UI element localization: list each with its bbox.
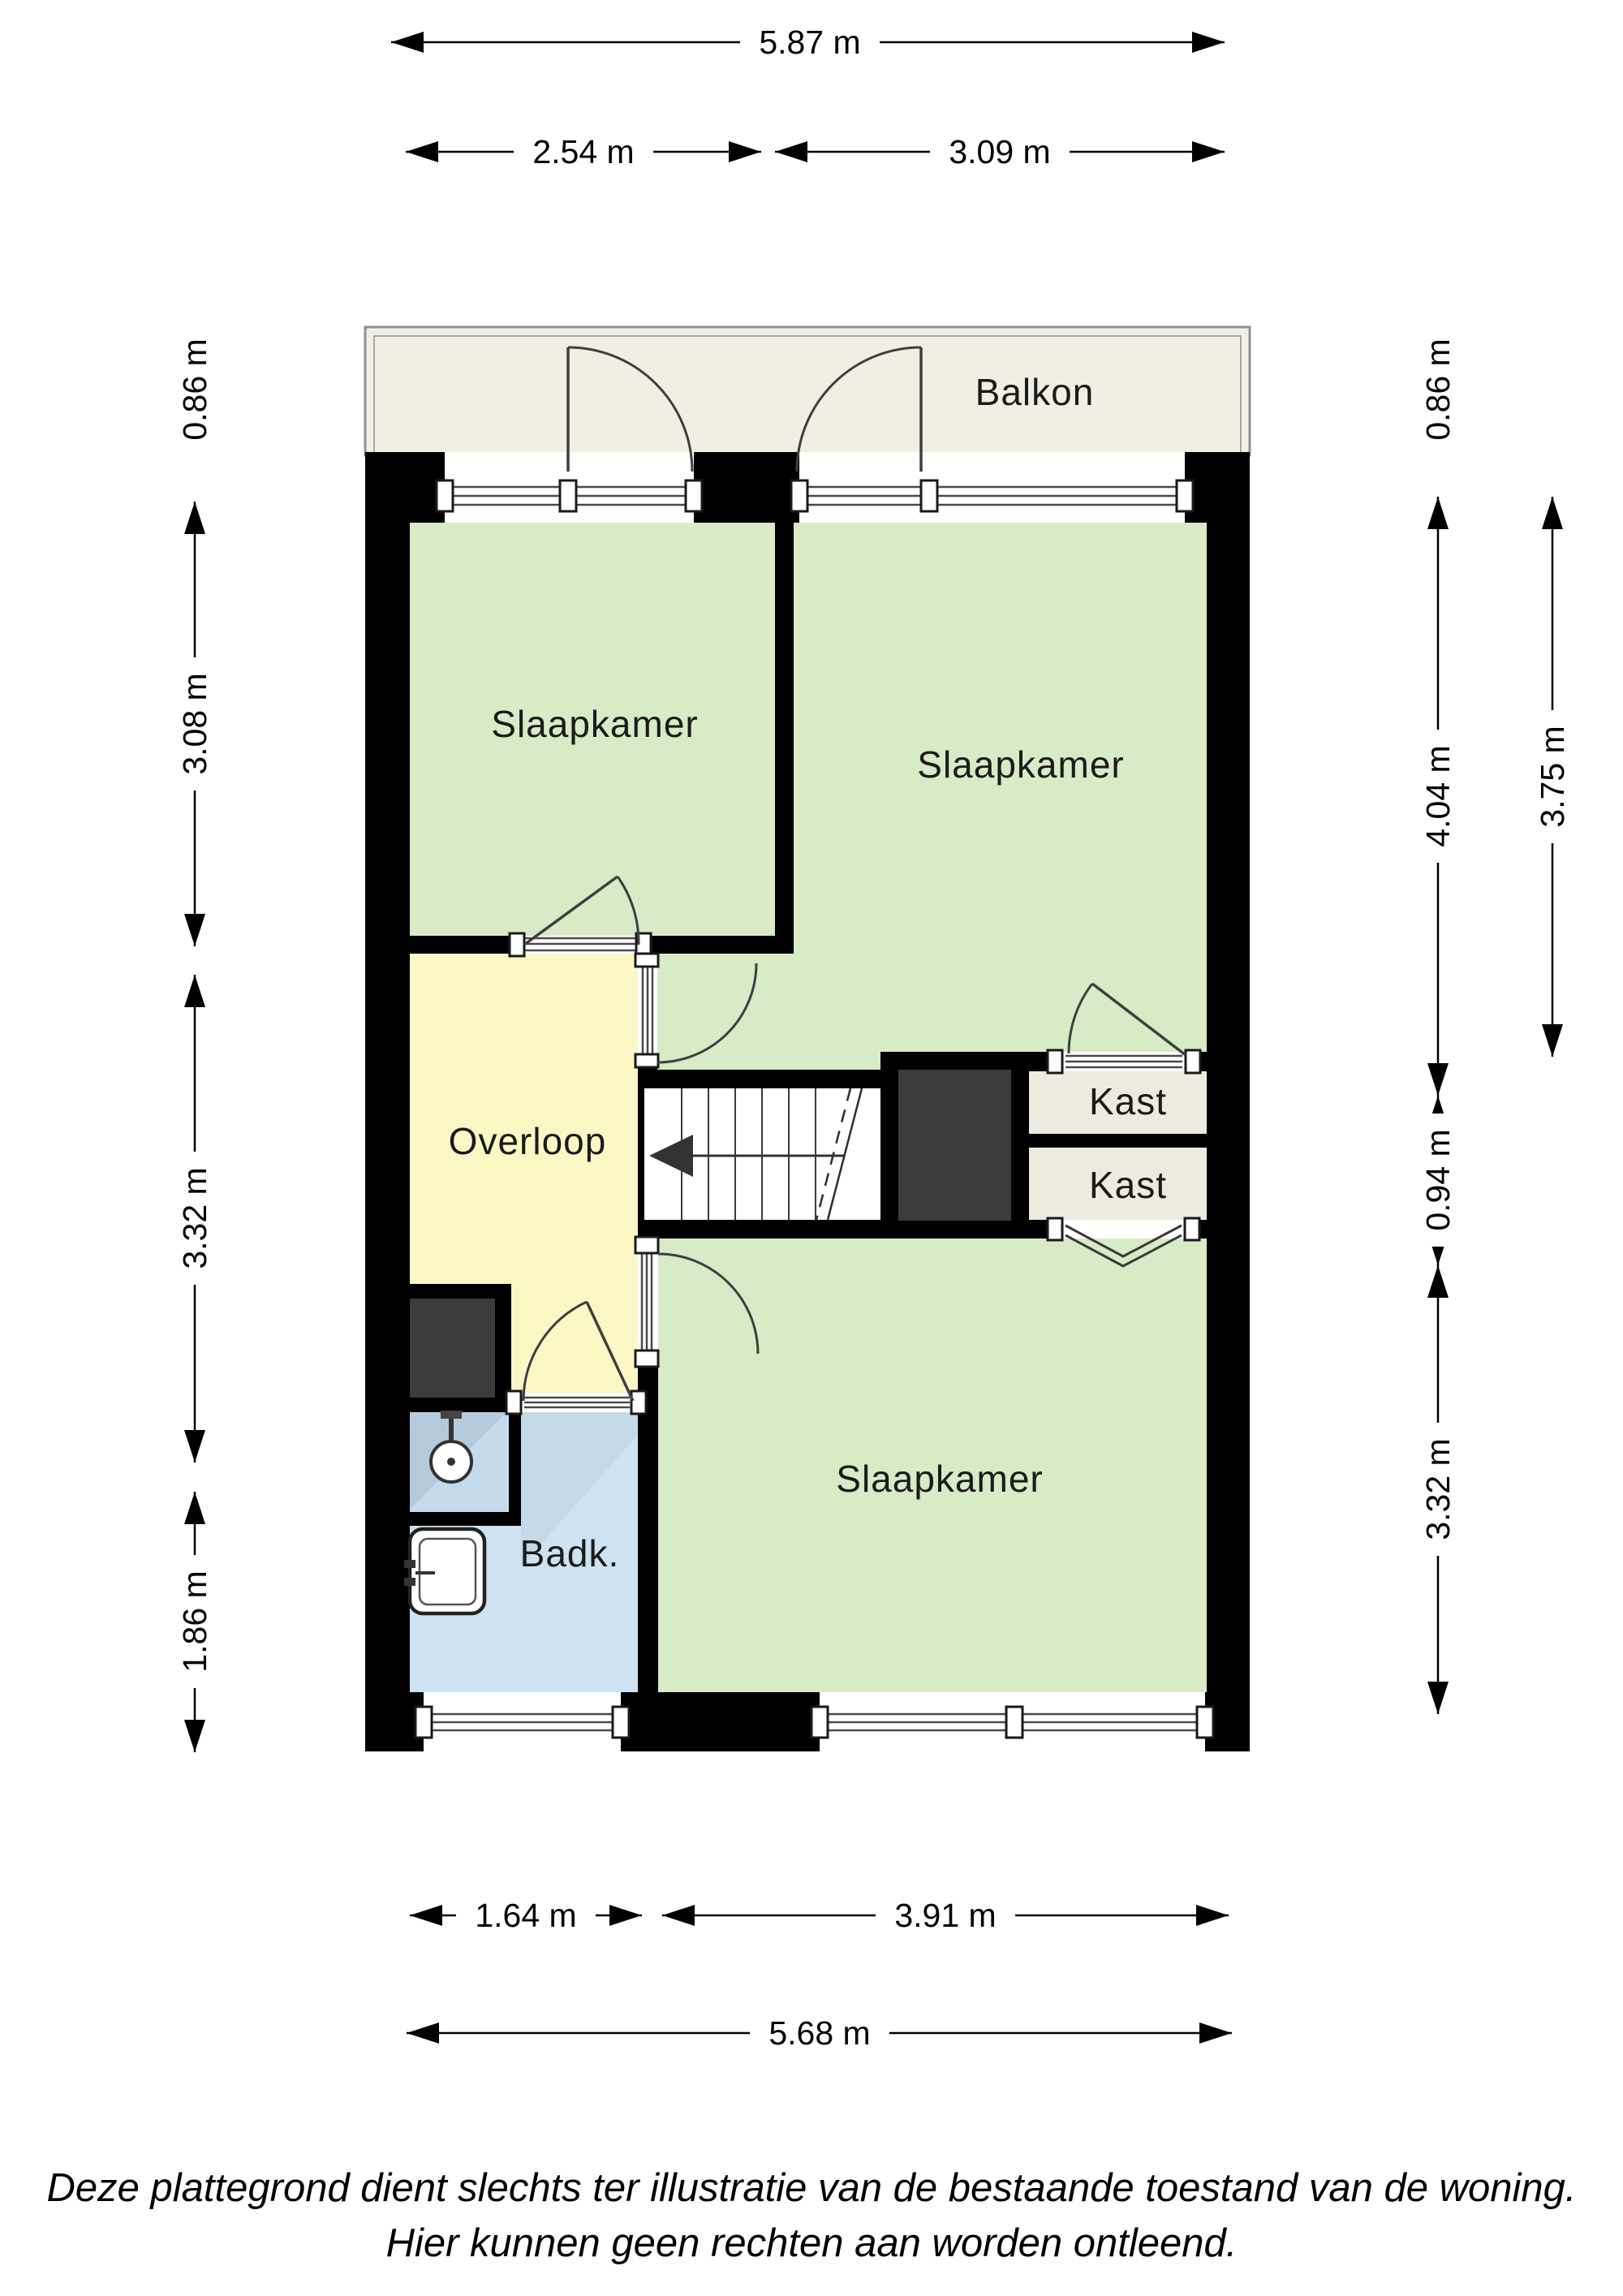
dim-left-middle: 3.32 m	[174, 975, 216, 1462]
room-label-badkamer: Badk.	[520, 1532, 620, 1574]
dim-bottom-left: 1.64 m	[410, 1897, 642, 1934]
balcony	[365, 327, 1250, 455]
dim-right-upper: 4.04 m	[1417, 497, 1459, 1096]
stairs-left-stringer	[638, 1088, 644, 1220]
dim-right-middle: 0.94 m	[1417, 1096, 1459, 1265]
dim-bottom-right: 3.91 m	[662, 1897, 1229, 1934]
dim-top-total: 5.87 m	[391, 24, 1225, 61]
balcony-floor	[365, 327, 1250, 455]
dim-bottom-total: 5.68 m	[407, 2014, 1232, 2052]
dim-top-right: 3.09 m	[775, 133, 1225, 170]
dim-label-bottom-total: 5.68 m	[768, 2014, 870, 2052]
disclaimer-line-1: Deze plattegrond dient slechts ter illus…	[47, 2166, 1577, 2210]
dim-label-right-middle: 0.94 m	[1419, 1129, 1457, 1230]
dim-top-left: 2.54 m	[406, 133, 761, 170]
dim-label-left-balcony: 0.86 m	[176, 338, 213, 440]
wall-top-pier-middle	[694, 452, 799, 523]
disclaimer-line-2: Hier kunnen geen rechten aan worden ontl…	[386, 2221, 1238, 2265]
wall-top-pier-right	[1185, 452, 1250, 523]
floorplan-canvas: Balkon Slaapkamer Slaapkamer Overloop Ka…	[0, 0, 1623, 2296]
room-label-slaapkamer-top-left: Slaapkamer	[491, 703, 698, 745]
shaft-duct	[898, 1070, 1011, 1221]
wall-kast-divider	[1029, 1134, 1207, 1148]
dim-label-right-balcony: 0.86 m	[1419, 338, 1457, 440]
wall-left-exterior	[365, 452, 410, 1751]
wall-bedroom-divider	[775, 523, 794, 954]
dim-label-left-lower: 1.86 m	[176, 1570, 213, 1672]
dim-label-top-left: 2.54 m	[532, 133, 634, 170]
room-label-slaapkamer-top-right: Slaapkamer	[917, 743, 1124, 786]
dim-right-balcony: 0.86 m	[1417, 323, 1459, 456]
room-label-kast-lower: Kast	[1089, 1164, 1167, 1206]
wall-shower-right	[509, 1410, 521, 1512]
dim-label-right-outer: 3.75 m	[1534, 726, 1571, 827]
dim-label-right-upper: 4.04 m	[1419, 745, 1457, 846]
wall-stairs-top	[638, 1070, 898, 1088]
sink-icon	[404, 1529, 484, 1613]
dim-right-lower: 3.32 m	[1417, 1265, 1459, 1714]
dim-label-right-lower: 3.32 m	[1419, 1438, 1457, 1540]
room-label-slaapkamer-bottom: Slaapkamer	[836, 1458, 1043, 1500]
dim-label-top-right: 3.09 m	[949, 133, 1050, 170]
shaft2-duct	[410, 1299, 495, 1398]
dim-label-top-total: 5.87 m	[759, 24, 860, 61]
wall-bottom-pier-middle	[621, 1692, 820, 1751]
dim-label-bottom-left: 1.64 m	[475, 1897, 576, 1934]
window-bottom-bath	[415, 1692, 629, 1751]
room-fills	[410, 496, 1207, 1692]
dim-right-outer: 3.75 m	[1531, 497, 1573, 1057]
wall-stairs-bottom	[638, 1220, 880, 1238]
dim-label-left-middle: 3.32 m	[176, 1167, 213, 1269]
room-label-kast-upper: Kast	[1089, 1080, 1167, 1122]
room-label-overloop: Overloop	[449, 1120, 607, 1162]
window-bottom-bedroom	[811, 1692, 1213, 1751]
dim-left-lower: 1.86 m	[174, 1492, 216, 1752]
dim-label-bottom-right: 3.91 m	[894, 1897, 996, 1934]
wall-top-pier-left	[365, 452, 445, 523]
wall-right-exterior	[1207, 452, 1250, 1751]
disclaimer: Deze plattegrond dient slechts ter illus…	[47, 2166, 1577, 2265]
window-top-right	[791, 452, 1193, 523]
wall-v4-bottom	[638, 1367, 658, 1692]
dim-left-upper: 3.08 m	[174, 502, 216, 946]
dim-left-balcony: 0.86 m	[174, 323, 216, 456]
room-label-balkon: Balkon	[975, 371, 1095, 413]
dim-label-left-upper: 3.08 m	[176, 673, 213, 774]
wall-shower-bottom	[410, 1512, 521, 1526]
